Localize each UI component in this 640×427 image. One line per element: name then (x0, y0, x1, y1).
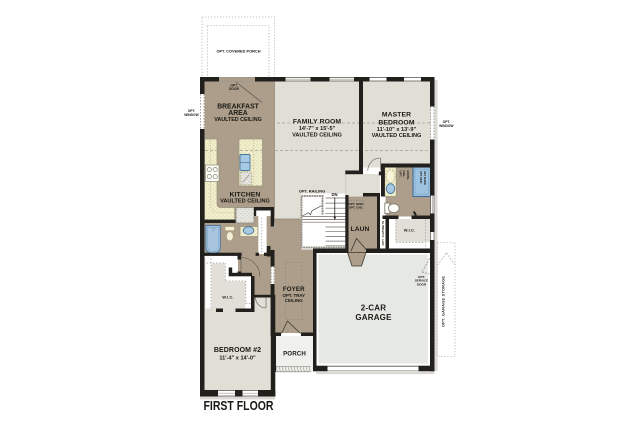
svg-text:DOOR: DOOR (229, 87, 240, 91)
svg-text:OPT. GARAGE STORAGE: OPT. GARAGE STORAGE (442, 276, 446, 327)
svg-text:VAULTED CEILING: VAULTED CEILING (220, 198, 270, 204)
svg-text:W.I.C.: W.I.C. (222, 294, 234, 299)
svg-text:OPT. CABINETS: OPT. CABINETS (381, 221, 385, 246)
svg-text:DOOR: DOOR (417, 282, 427, 286)
svg-text:WINDOW: WINDOW (184, 113, 199, 117)
svg-text:BEDROOM #2: BEDROOM #2 (214, 347, 261, 354)
svg-text:LAUN: LAUN (351, 226, 370, 233)
svg-text:VAULTED CEILING: VAULTED CEILING (214, 117, 262, 123)
svg-text:MASTER: MASTER (382, 112, 411, 119)
svg-text:OPT.: OPT. (399, 171, 403, 178)
svg-text:GARAGE: GARAGE (355, 313, 392, 322)
svg-text:PORCH: PORCH (283, 350, 306, 357)
svg-text:CEILING: CEILING (285, 298, 303, 303)
svg-text:FAMILY ROOM: FAMILY ROOM (293, 119, 342, 126)
svg-text:SET SHWR: SET SHWR (423, 171, 427, 185)
svg-text:W.I.C.: W.I.C. (404, 228, 416, 233)
svg-text:11'-10" x 13'-9": 11'-10" x 13'-9" (377, 127, 417, 133)
svg-text:OPT. COVERED PORCH: OPT. COVERED PORCH (216, 48, 260, 53)
svg-text:11'-4" x 14'-0": 11'-4" x 14'-0" (219, 355, 256, 361)
svg-text:VAULTED CEILING: VAULTED CEILING (292, 132, 342, 138)
svg-text:OPT. RAILING: OPT. RAILING (299, 188, 325, 193)
svg-text:OPT. CAB.: OPT. CAB. (349, 205, 363, 209)
svg-text:DN: DN (331, 192, 337, 197)
svg-text:FIRST FLOOR: FIRST FLOOR (204, 398, 274, 413)
svg-text:OPT. MUD: OPT. MUD (419, 171, 423, 184)
svg-text:WINDOW: WINDOW (439, 124, 454, 128)
svg-text:VAULTED CEILING: VAULTED CEILING (372, 133, 422, 139)
svg-text:KITCHEN: KITCHEN (230, 191, 261, 198)
svg-text:AREA: AREA (228, 108, 248, 117)
svg-text:BEDROOM: BEDROOM (378, 120, 414, 127)
svg-text:14'-7" x 15'-5": 14'-7" x 15'-5" (299, 126, 336, 132)
svg-text:2-CAR: 2-CAR (361, 304, 386, 313)
svg-text:DBL.: DBL. (402, 171, 406, 178)
svg-text:BOWL: BOWL (406, 171, 410, 181)
